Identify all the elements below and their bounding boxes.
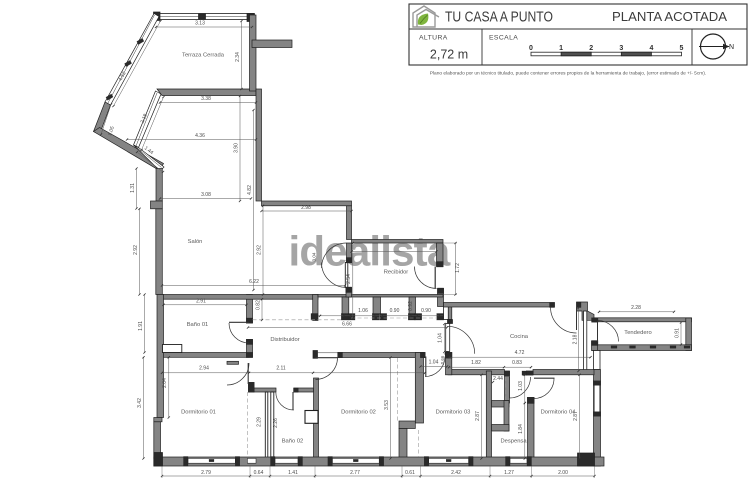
svg-text:Tendedero: Tendedero — [624, 330, 651, 336]
svg-text:3: 3 — [619, 45, 623, 52]
svg-text:2.87: 2.87 — [475, 411, 481, 421]
svg-text:2: 2 — [589, 45, 593, 52]
svg-text:3.13: 3.13 — [195, 21, 205, 27]
svg-text:2.79: 2.79 — [201, 470, 211, 476]
svg-text:0.91: 0.91 — [675, 328, 681, 338]
svg-text:2.92: 2.92 — [133, 245, 139, 255]
svg-text:Dormitorio 03: Dormitorio 03 — [436, 410, 471, 416]
svg-text:2.28: 2.28 — [631, 305, 641, 311]
svg-text:Dormitorio 02: Dormitorio 02 — [341, 410, 376, 416]
svg-text:1.84: 1.84 — [518, 424, 524, 434]
svg-text:1.72: 1.72 — [455, 263, 461, 273]
svg-text:2.98: 2.98 — [301, 205, 311, 211]
svg-text:Dormitorio 01: Dormitorio 01 — [181, 410, 216, 416]
svg-text:1.82: 1.82 — [471, 360, 481, 366]
svg-text:3.90: 3.90 — [233, 143, 239, 153]
svg-text:3.42: 3.42 — [137, 398, 143, 408]
svg-text:TU CASA A PUNTO: TU CASA A PUNTO — [445, 10, 553, 26]
svg-text:ESCALA: ESCALA — [489, 35, 518, 42]
svg-text:0.83: 0.83 — [512, 360, 522, 366]
svg-text:2.18: 2.18 — [572, 334, 578, 344]
svg-text:PLANTA ACOTADA: PLANTA ACOTADA — [612, 10, 728, 24]
svg-text:0: 0 — [529, 45, 533, 52]
svg-text:1.04: 1.04 — [429, 360, 439, 366]
svg-text:2.11: 2.11 — [276, 365, 286, 371]
svg-text:2.42: 2.42 — [451, 470, 461, 476]
svg-text:2.44: 2.44 — [493, 376, 503, 382]
svg-text:2.77: 2.77 — [350, 470, 360, 476]
svg-text:2.54: 2.54 — [346, 274, 352, 284]
svg-text:1.03: 1.03 — [518, 381, 524, 391]
svg-text:0.90: 0.90 — [421, 308, 431, 314]
svg-text:3.08: 3.08 — [201, 192, 211, 198]
svg-text:4.72: 4.72 — [515, 350, 525, 356]
svg-text:Dormitorio 04: Dormitorio 04 — [541, 410, 577, 416]
svg-text:2.34: 2.34 — [235, 52, 241, 62]
svg-text:2.92: 2.92 — [256, 245, 262, 255]
svg-text:idealista: idealista — [289, 228, 451, 275]
svg-text:1.41: 1.41 — [288, 470, 298, 476]
svg-text:3.53: 3.53 — [384, 400, 390, 410]
svg-text:1.04: 1.04 — [438, 333, 444, 343]
svg-text:Baño 01: Baño 01 — [187, 322, 209, 328]
svg-text:2.94: 2.94 — [199, 365, 209, 371]
svg-text:Baño 02: Baño 02 — [282, 439, 304, 445]
svg-text:6.66: 6.66 — [342, 321, 352, 327]
svg-text:1: 1 — [559, 45, 563, 52]
svg-text:1.31: 1.31 — [130, 183, 136, 193]
svg-text:6.22: 6.22 — [249, 279, 259, 285]
svg-text:0.90: 0.90 — [390, 308, 400, 314]
svg-text:Distribuidor: Distribuidor — [270, 337, 299, 343]
svg-text:Salón: Salón — [188, 239, 203, 245]
svg-text:0.66: 0.66 — [440, 355, 445, 364]
svg-text:N: N — [729, 44, 734, 51]
svg-text:2,72 m: 2,72 m — [430, 48, 468, 62]
svg-text:ALTURA: ALTURA — [419, 35, 448, 42]
svg-text:2.29: 2.29 — [257, 417, 263, 427]
svg-text:0.64: 0.64 — [254, 470, 264, 476]
svg-text:4.82: 4.82 — [247, 185, 253, 195]
svg-text:Terraza Cerrada: Terraza Cerrada — [182, 53, 225, 59]
svg-text:1.27: 1.27 — [504, 470, 514, 476]
svg-text:1.91: 1.91 — [138, 321, 144, 331]
svg-text:3.04: 3.04 — [312, 252, 317, 261]
svg-text:Recibidor: Recibidor — [384, 270, 409, 276]
svg-text:2.04: 2.04 — [162, 378, 168, 388]
svg-text:2.26: 2.26 — [273, 418, 279, 428]
svg-text:4.36: 4.36 — [195, 133, 205, 139]
svg-text:Despensa: Despensa — [500, 439, 527, 445]
svg-text:3.38: 3.38 — [201, 96, 211, 102]
svg-text:2.00: 2.00 — [558, 470, 568, 476]
svg-text:0.61: 0.61 — [405, 470, 415, 476]
svg-text:2.91: 2.91 — [196, 298, 206, 304]
svg-text:5: 5 — [680, 45, 684, 52]
svg-text:Plano elaborado por un técnico: Plano elaborado por un técnico titulado,… — [430, 71, 706, 77]
svg-text:0.92: 0.92 — [408, 301, 414, 311]
svg-text:1.06: 1.06 — [358, 308, 368, 314]
svg-text:0.82: 0.82 — [255, 300, 261, 310]
svg-text:4: 4 — [649, 45, 653, 52]
svg-text:Cocina: Cocina — [510, 334, 529, 340]
